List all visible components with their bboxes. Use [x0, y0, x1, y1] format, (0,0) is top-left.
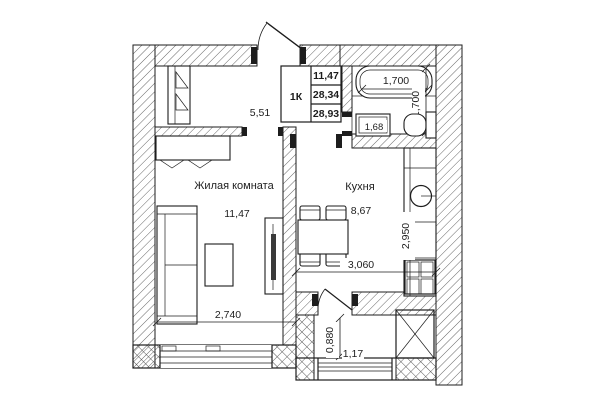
- door-swing-arc: [258, 23, 267, 50]
- tub-width-label: 1,700: [383, 75, 409, 87]
- bathroom: 1,700 1,700 1,68: [352, 64, 436, 138]
- hanger-icon: [160, 160, 184, 168]
- balcony-area-label: 1,17: [343, 348, 364, 360]
- jamb: [300, 47, 306, 64]
- balcony-door-leaf: [325, 289, 352, 310]
- jamb: [242, 127, 247, 136]
- shaft: [396, 310, 434, 358]
- floor-plan: 1К 11,47 28,34 28,93 5,51 1,700 1,700 1,…: [0, 0, 600, 400]
- bath-depth-label: 1,700: [410, 91, 422, 117]
- chair: [300, 206, 320, 220]
- hall-area-label: 5,51: [250, 107, 271, 119]
- living-room-area-label: 11,47: [224, 208, 250, 220]
- wardrobe: [156, 136, 230, 160]
- wall-top-left: [155, 45, 257, 66]
- wall-hall-partition: [155, 127, 242, 136]
- wall-balcony-left: [296, 315, 314, 380]
- toilet-tank: [426, 112, 436, 138]
- window-opening: [160, 345, 272, 368]
- living-area-value: 11,47: [313, 70, 339, 82]
- living-room: Жилая комната 11,47 2,740: [153, 136, 300, 368]
- jamb: [278, 127, 283, 136]
- kitchen-width-label: 3,060: [348, 259, 374, 271]
- kitchen-area-label: 8,67: [351, 205, 372, 217]
- hall-closet: [168, 66, 190, 124]
- wall-pier-left: [133, 345, 160, 368]
- hallway: 5,51: [168, 66, 270, 124]
- kitchen: Кухня 8,67: [292, 148, 440, 296]
- toilet: [404, 114, 426, 136]
- door-leaf-edge: [268, 24, 304, 51]
- apartment-type-label: 1К: [290, 91, 303, 103]
- wall-pier-right: [272, 345, 296, 368]
- tv-icon: [271, 234, 276, 280]
- living-room-name-label: Жилая комната: [194, 180, 274, 192]
- living-width-label: 2,740: [215, 309, 241, 321]
- jamb: [342, 131, 352, 136]
- dining-table: [298, 220, 348, 254]
- hanger-icon: [188, 160, 212, 168]
- balcony-glazing: [318, 358, 392, 380]
- wall-right: [436, 45, 462, 385]
- jamb: [336, 134, 342, 148]
- wall-living-kitchen: [283, 127, 296, 345]
- wall-left: [133, 45, 155, 368]
- jamb: [290, 134, 296, 148]
- balcony-depth-label: 0,880: [324, 327, 336, 353]
- wall-balcony-pier: [396, 358, 436, 380]
- balcony-door-swing-arc: [318, 289, 325, 310]
- door-leaf: [266, 22, 302, 49]
- total-area-with-balcony-value: 28,93: [313, 108, 339, 120]
- jamb: [352, 294, 358, 306]
- kitchen-name-label: Кухня: [345, 181, 374, 193]
- kitchen-depth-label: 2,950: [400, 223, 412, 249]
- coffee-table: [205, 244, 233, 286]
- wall-top-bath: [340, 45, 436, 66]
- dining-set: [298, 206, 348, 266]
- jamb: [342, 112, 352, 117]
- floor-plan-page: 1К 11,47 28,34 28,93 5,51 1,700 1,700 1,…: [0, 0, 600, 400]
- bath-fixture-label: 1,68: [365, 122, 384, 133]
- living-window: [160, 345, 272, 368]
- entrance-door: [258, 22, 304, 51]
- jamb: [251, 47, 257, 64]
- wall-bath-left: [342, 66, 352, 112]
- info-table: 1К 11,47 28,34 28,93: [281, 66, 341, 122]
- jamb: [312, 294, 318, 306]
- total-area-value: 28,34: [313, 89, 339, 101]
- chair: [326, 206, 346, 220]
